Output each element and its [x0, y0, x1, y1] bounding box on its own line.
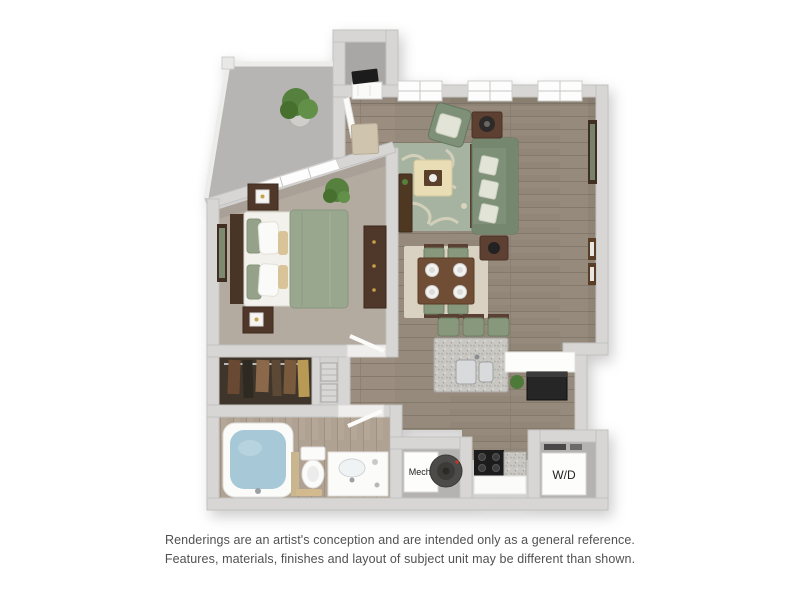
- kitchen-counter: [505, 352, 575, 372]
- bath-mat: [296, 489, 322, 496]
- floorplan-svg: Mech. W/D: [0, 0, 800, 600]
- kitchen-island: [434, 338, 508, 392]
- toilet: [301, 447, 325, 488]
- end-table: [480, 236, 508, 260]
- floorplan-group: Mech. W/D: [205, 30, 608, 510]
- floorplan-page: Mech. W/D Renderings are an artist's con…: [0, 0, 800, 600]
- entry-console: [399, 174, 412, 232]
- disclaimer: Renderings are an artist's conception an…: [0, 531, 800, 569]
- water-heater: [430, 455, 462, 487]
- range-counter: [474, 450, 526, 494]
- sofa: [470, 138, 518, 234]
- bed: [230, 210, 348, 308]
- living-window-2: [468, 81, 512, 101]
- disclaimer-line-2: Features, materials, finishes and layout…: [0, 550, 800, 569]
- nightstand: [243, 307, 273, 333]
- bar-stools: [438, 314, 509, 336]
- vanity: [328, 452, 388, 496]
- nightstand: [248, 184, 278, 210]
- washer-dryer-label: W/D: [552, 468, 576, 482]
- headboard: [230, 214, 244, 304]
- bedroom-wall-art: [217, 224, 227, 282]
- stove: [474, 450, 504, 476]
- dresser: [364, 226, 386, 308]
- entry-doormat: [351, 123, 379, 154]
- entry-door: [352, 82, 382, 99]
- bathtub: [223, 423, 293, 497]
- living-wall-art: [588, 120, 597, 184]
- refrigerator: [527, 372, 567, 400]
- living-window-3: [538, 81, 582, 101]
- railing-post: [222, 57, 234, 69]
- duvet: [290, 210, 348, 308]
- tub-faucet: [255, 488, 261, 494]
- floorplan-image: Mech. W/D: [0, 0, 800, 600]
- disclaimer-line-1: Renderings are an artist's conception an…: [0, 531, 800, 550]
- sink-basin: [456, 360, 476, 384]
- dining-table: [418, 258, 474, 304]
- faucet: [475, 355, 480, 360]
- vanity-sink: [339, 459, 365, 477]
- living-window-1: [398, 81, 442, 101]
- side-table-lamp: [472, 112, 502, 138]
- sink-basin: [479, 362, 493, 382]
- vanity-faucet: [350, 478, 355, 483]
- kitchen-plant: [510, 375, 524, 389]
- ottoman: [414, 160, 452, 196]
